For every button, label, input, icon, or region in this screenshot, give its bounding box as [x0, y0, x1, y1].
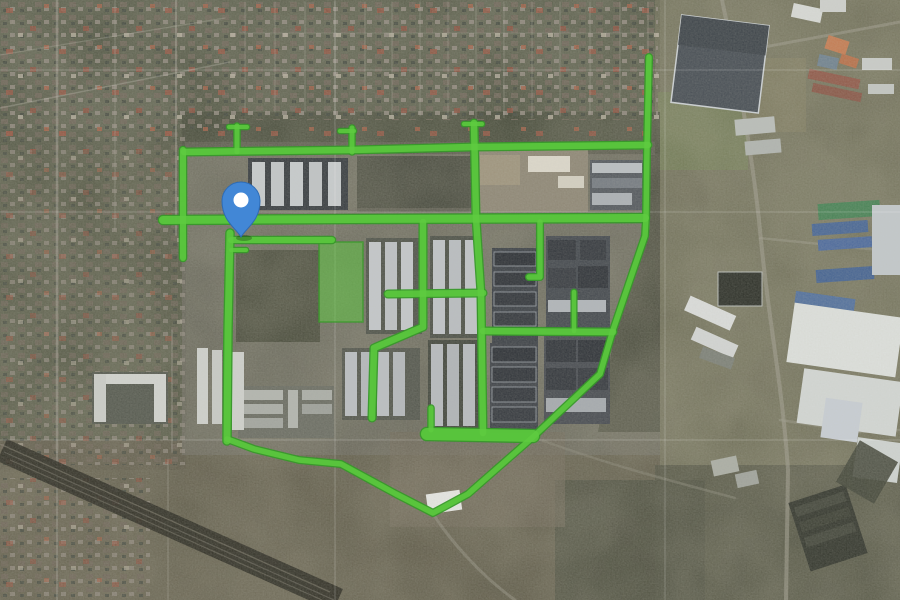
pin-center-dot: [234, 193, 249, 208]
grain-texture: [0, 0, 900, 600]
map-viewport[interactable]: [0, 0, 900, 600]
satellite-map[interactable]: [0, 0, 900, 600]
pin-shadow: [236, 235, 252, 241]
